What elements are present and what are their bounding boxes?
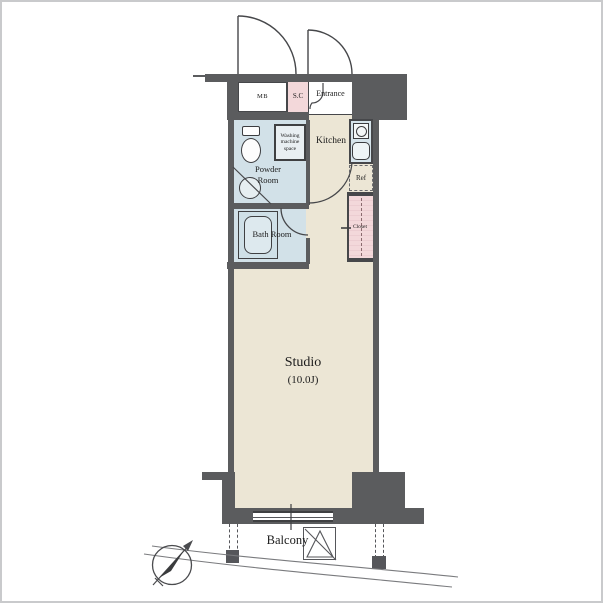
balcony-window [253, 511, 333, 522]
wall-segment [306, 238, 310, 264]
toilet-icon [241, 138, 261, 163]
entrance-door-arc [308, 30, 352, 74]
wall-segment [352, 74, 407, 120]
studio-label: Studio [253, 354, 353, 372]
closet-label: Closet [347, 192, 373, 262]
floor-plan: MB S.C Entrance Washing machine space Ki… [0, 0, 603, 603]
wall-segment [405, 508, 424, 524]
balcony-label: Balcony [240, 533, 335, 549]
mb-label: MB [238, 82, 287, 112]
balcony-partition-right [375, 524, 384, 558]
wall-segment [228, 118, 234, 478]
balcony-post-left [226, 550, 239, 563]
ref-label: Ref [349, 165, 373, 191]
compass-icon [153, 540, 194, 586]
entrance-label: Entrance [308, 80, 353, 108]
shoe-closet-label: S.C [287, 79, 309, 113]
balcony-railing-curve [144, 546, 458, 587]
wall-segment [232, 203, 309, 209]
bath-room-label: Bath Room [238, 229, 306, 240]
wall-segment [227, 262, 309, 269]
studio-area-label: (10.0J) [253, 374, 353, 388]
wall-segment [352, 472, 405, 524]
balcony-post-right [372, 556, 386, 569]
door-arc [238, 16, 296, 74]
wall-segment [227, 112, 309, 120]
wall-segment [306, 120, 310, 205]
kitchen-label: Kitchen [303, 136, 359, 148]
washing-machine-label: Washing machine space [275, 125, 305, 160]
toilet-icon [242, 126, 260, 136]
wall-segment [373, 118, 379, 476]
powder-room-label: Powder Room [245, 164, 291, 185]
